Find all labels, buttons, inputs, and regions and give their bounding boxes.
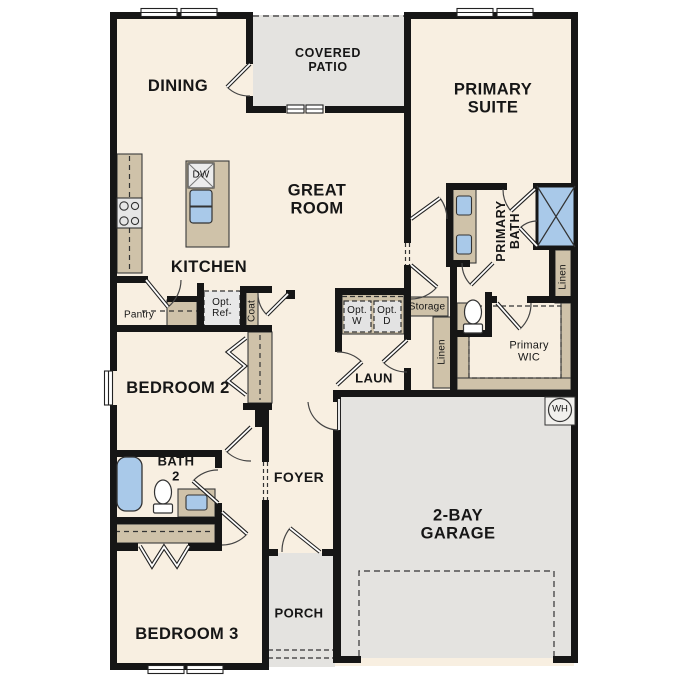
window-bedroom3-1 <box>148 666 184 674</box>
window-dining-1 <box>141 9 177 17</box>
washer-optional <box>344 301 371 332</box>
floor-plan-drawing <box>0 0 687 687</box>
toilet-bath2 <box>154 480 173 513</box>
vanity-sink-1 <box>457 196 472 215</box>
window-patio-1 <box>287 105 304 113</box>
linen-bath-closet <box>555 250 571 303</box>
shower <box>537 186 575 247</box>
water-heater <box>545 397 575 425</box>
dishwasher <box>188 163 214 188</box>
wic-shelf-bottom <box>457 378 571 390</box>
window-bedroom2 <box>105 371 113 405</box>
refrigerator-optional <box>204 291 240 326</box>
dryer-optional <box>374 301 401 332</box>
wic-shelf-right <box>561 303 571 390</box>
window-patio-2 <box>306 105 323 113</box>
floor-plan: DINING COVERED PATIO PRIMARY SUITE GREAT… <box>0 0 687 687</box>
linen-hall-closet <box>433 317 451 388</box>
bathtub <box>117 457 142 511</box>
bedroom3-closet <box>114 524 215 543</box>
toilet-primary <box>464 300 483 333</box>
coat-closet <box>246 292 258 330</box>
garage-floor <box>339 395 573 658</box>
vanity-sink-2 <box>457 235 472 254</box>
kitchen-sink <box>190 190 212 223</box>
window-suite-1 <box>457 9 493 17</box>
patio-floor <box>253 15 404 109</box>
storage-closet <box>407 297 448 316</box>
bath2-sink <box>186 495 207 510</box>
window-suite-2 <box>497 9 533 17</box>
window-dining-2 <box>181 9 217 17</box>
window-bedroom3-2 <box>187 666 223 674</box>
cooktop <box>117 198 142 228</box>
